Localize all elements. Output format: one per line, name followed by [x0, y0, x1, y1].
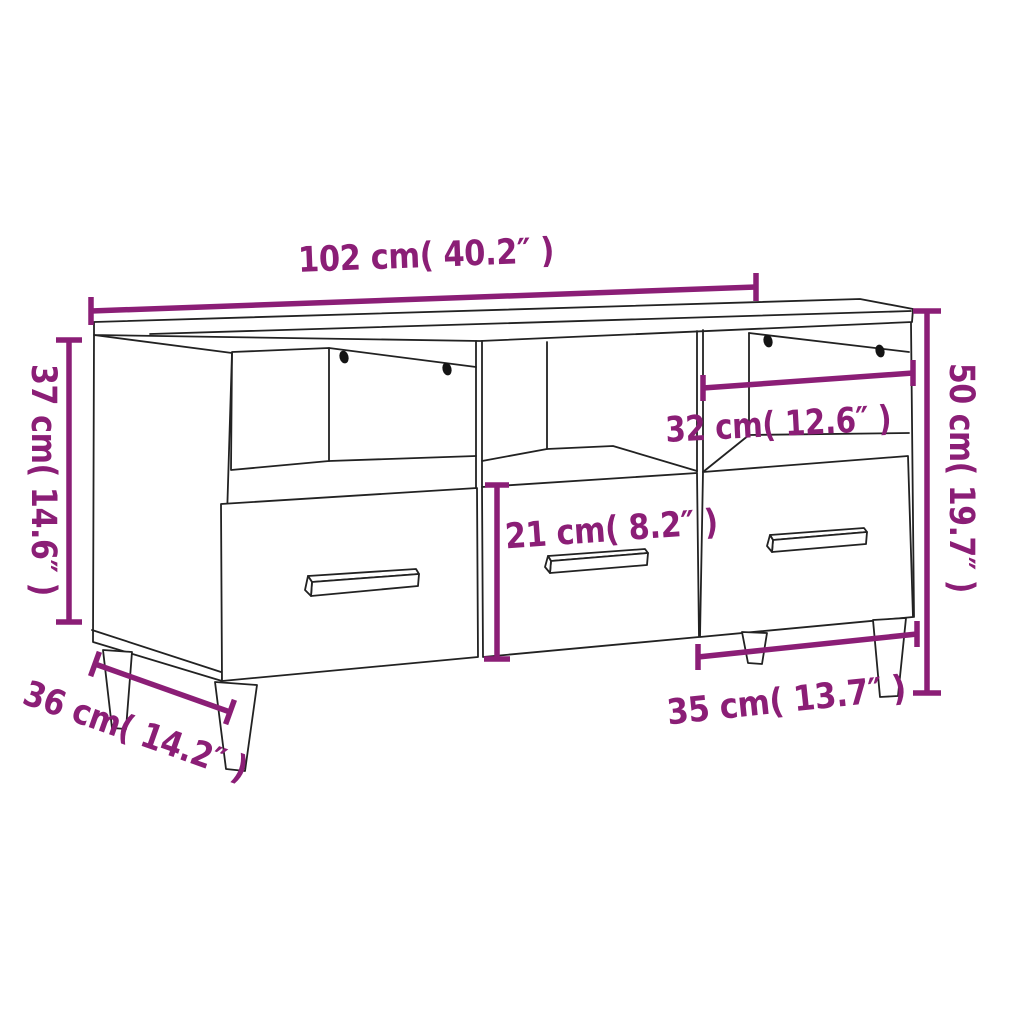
- label-total-height: 50 cm( 19.7″ ): [941, 363, 981, 593]
- open-compartment-1: [231, 348, 476, 470]
- dimension-line-compartment-width: [703, 360, 913, 401]
- label-body-height: 37 cm( 14.6″ ): [23, 364, 63, 596]
- label-compartment-width: 32 cm( 12.6″ ): [664, 399, 892, 451]
- label-overall-width: 102 cm( 40.2″ ): [297, 231, 554, 281]
- product-dimension-diagram: 102 cm( 40.2″ ) 37 cm( 14.6″ ) 50 cm( 19…: [0, 0, 1024, 1024]
- divider-1-edges: [476, 341, 482, 488]
- label-drawer-width: 35 cm( 13.7″ ): [665, 669, 908, 734]
- cabinet-left-panel: [93, 335, 232, 681]
- tv-cabinet-line-drawing: 102 cm( 40.2″ ) 37 cm( 14.6″ ) 50 cm( 19…: [0, 0, 1024, 1024]
- screw-icon: [338, 350, 350, 365]
- open-compartment-2: [482, 342, 697, 471]
- screw-icon: [874, 344, 886, 359]
